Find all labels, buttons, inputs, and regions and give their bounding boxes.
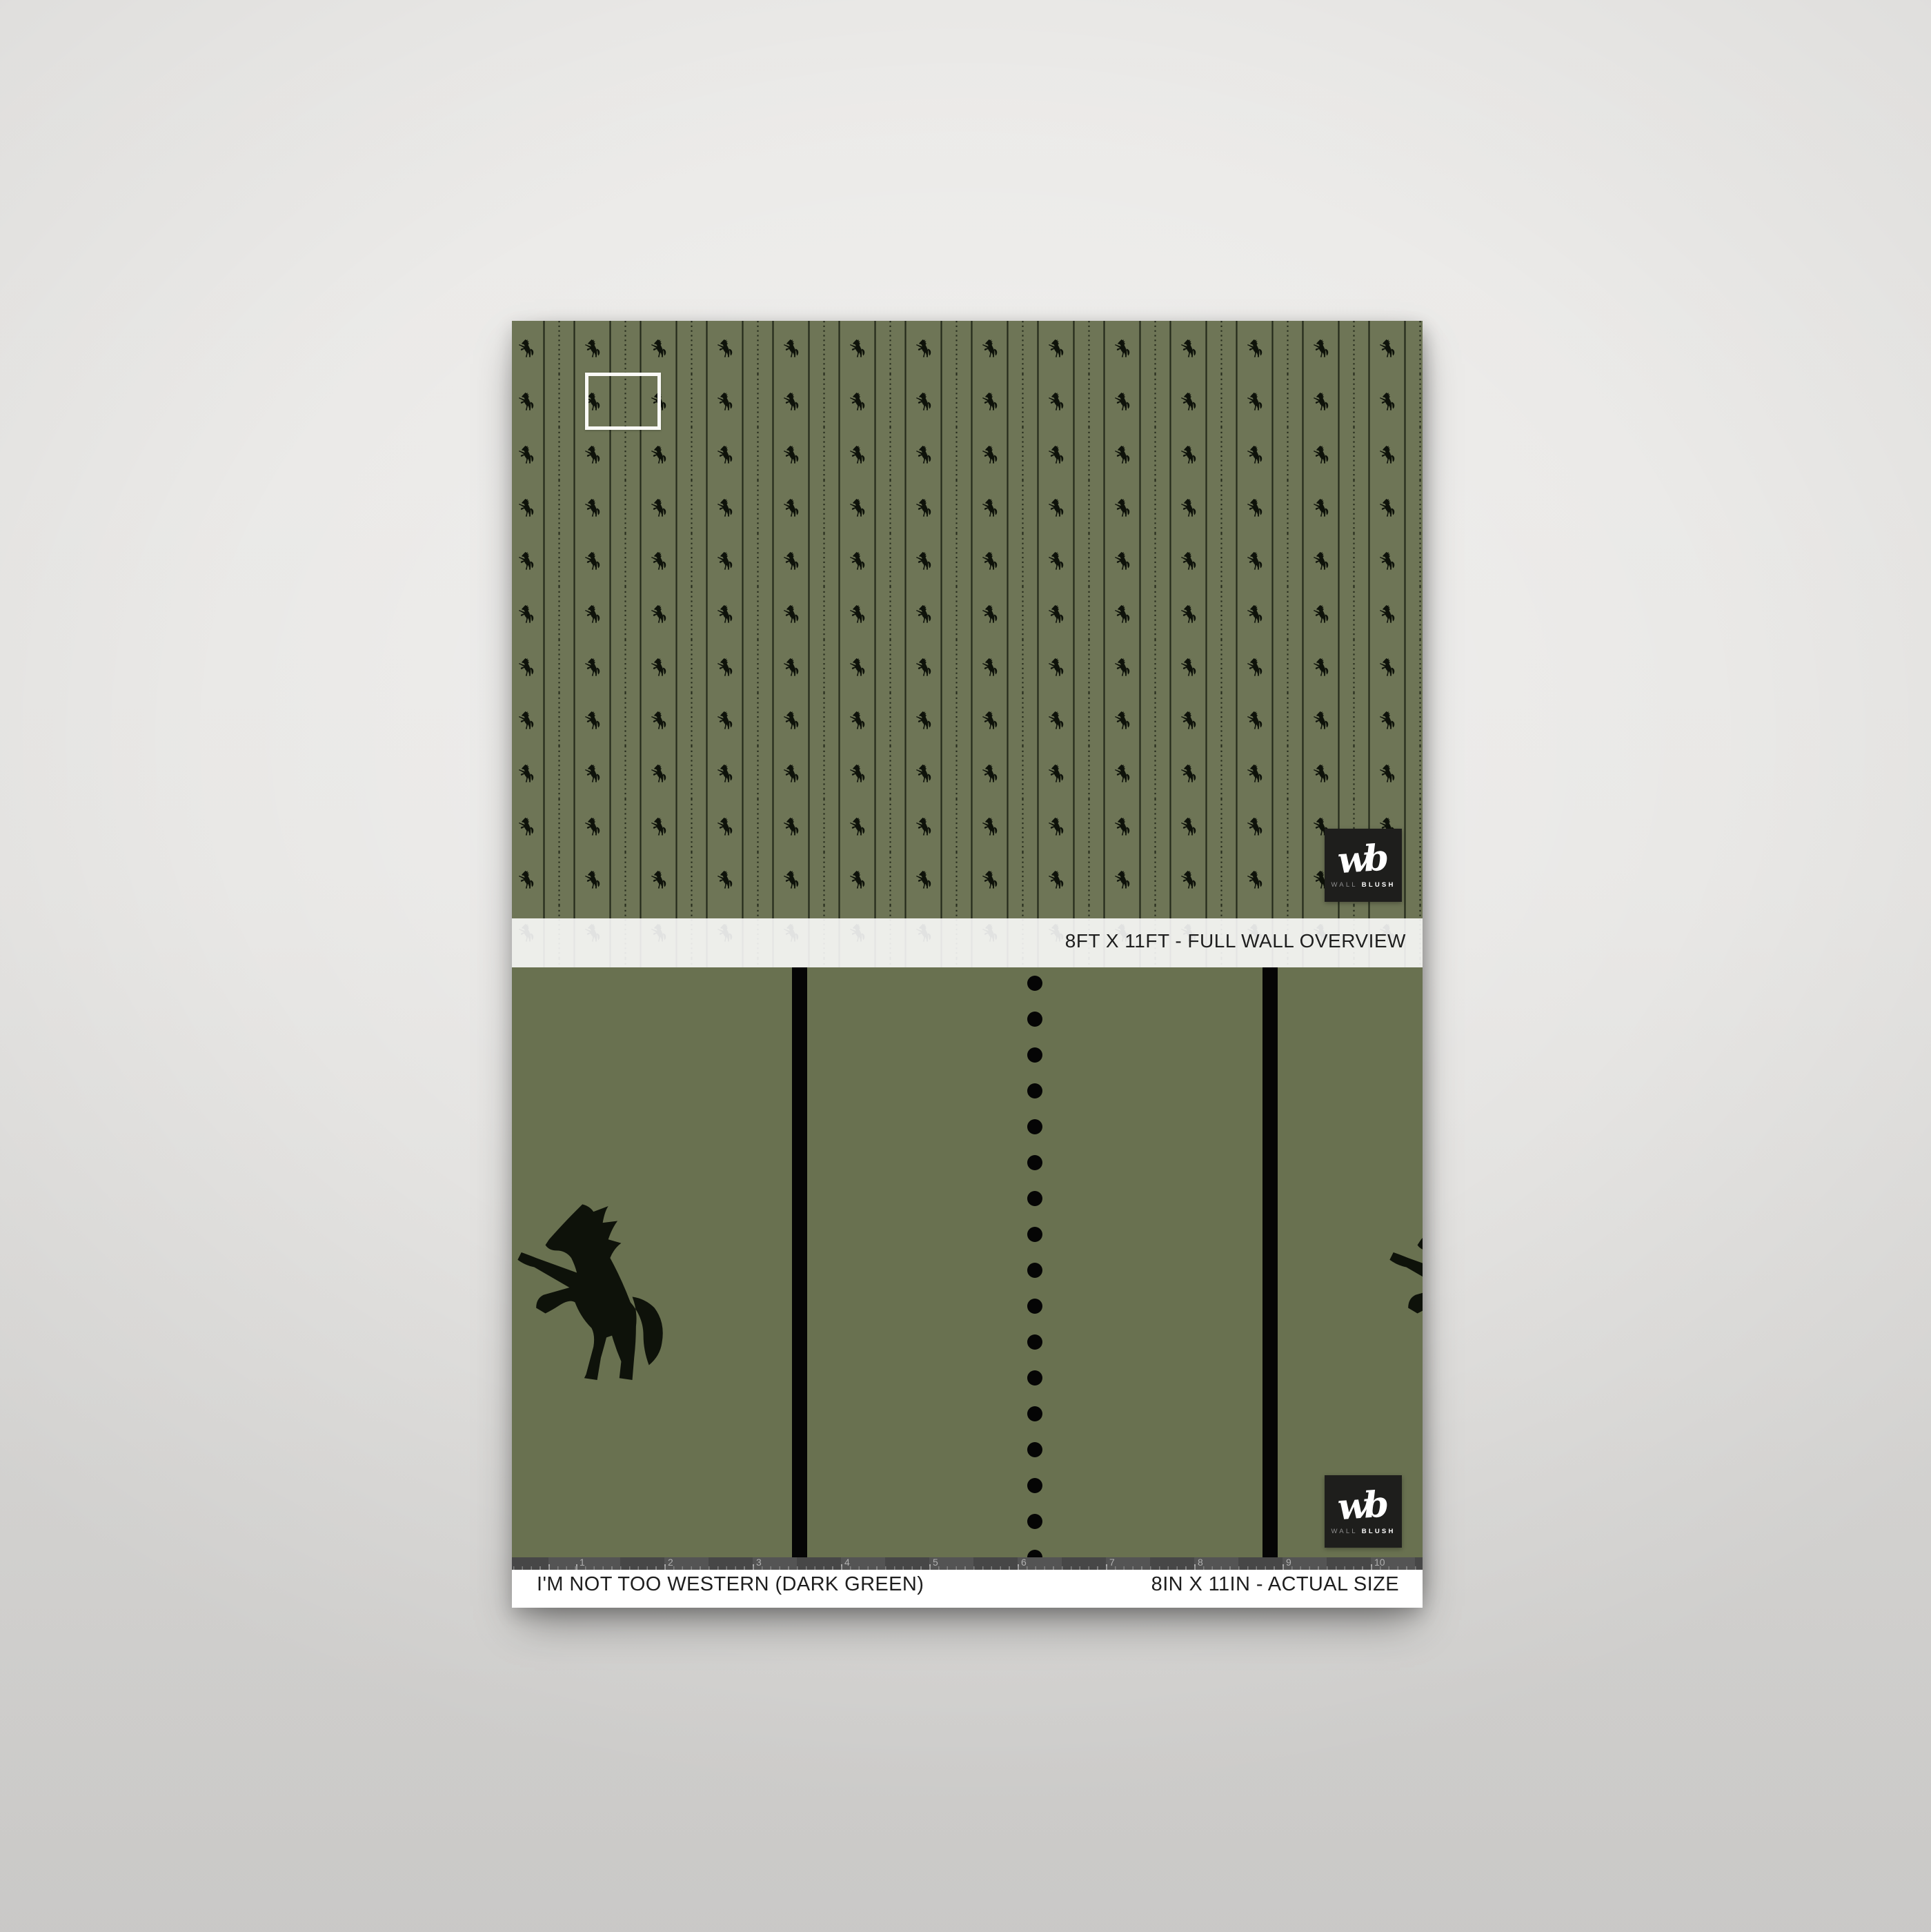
wall-overview-label: 8FT X 11FT - FULL WALL OVERVIEW bbox=[1065, 930, 1406, 952]
wallpaper-sample-poster: 8FT X 11FT - FULL WALL OVERVIEW wb WALLB… bbox=[512, 321, 1423, 1608]
logo-word-wall: WALL bbox=[1331, 1528, 1357, 1535]
title-band: I'M NOT TOO WESTERN (DARK GREEN) 8IN X 1… bbox=[512, 1570, 1423, 1608]
ruler-number: 8 bbox=[1198, 1557, 1203, 1567]
ruler-number: 7 bbox=[1109, 1557, 1115, 1567]
ruler-number: 9 bbox=[1286, 1557, 1291, 1567]
sample-area-marker bbox=[585, 373, 661, 430]
actual-size-label: 8IN X 11IN - ACTUAL SIZE bbox=[1151, 1573, 1399, 1596]
logo-word-blush: BLUSH bbox=[1362, 1528, 1396, 1535]
ruler-number: 10 bbox=[1374, 1557, 1385, 1567]
pattern-solid-stripe bbox=[792, 967, 807, 1557]
ruler-number: 4 bbox=[844, 1557, 850, 1567]
ruler-number: 3 bbox=[756, 1557, 762, 1567]
ruler-number: 1 bbox=[580, 1557, 585, 1567]
page-background: { "poster": { "wall_overview_label": "8F… bbox=[0, 0, 1931, 1932]
ruler: 12345678910 bbox=[512, 1557, 1423, 1570]
wall-blush-logo: wb WALLBLUSH bbox=[1325, 829, 1402, 902]
ruler-number: 6 bbox=[1021, 1557, 1027, 1567]
logo-word-blush: BLUSH bbox=[1362, 881, 1396, 889]
wall-blush-logo: wb WALLBLUSH bbox=[1325, 1475, 1402, 1548]
logo-wordmark: WALLBLUSH bbox=[1331, 1528, 1395, 1535]
logo-wordmark: WALLBLUSH bbox=[1331, 881, 1395, 889]
pattern-solid-stripe bbox=[1262, 967, 1278, 1557]
product-title: I'M NOT TOO WESTERN (DARK GREEN) bbox=[537, 1573, 924, 1596]
logo-monogram: wb bbox=[1337, 1488, 1385, 1524]
logo-word-wall: WALL bbox=[1331, 881, 1357, 889]
actual-size-pattern bbox=[512, 967, 1423, 1557]
ruler-number: 2 bbox=[668, 1557, 673, 1567]
ruler-number: 5 bbox=[933, 1557, 938, 1567]
overview-label-band: 8FT X 11FT - FULL WALL OVERVIEW bbox=[512, 918, 1423, 967]
logo-monogram: wb bbox=[1337, 842, 1385, 878]
